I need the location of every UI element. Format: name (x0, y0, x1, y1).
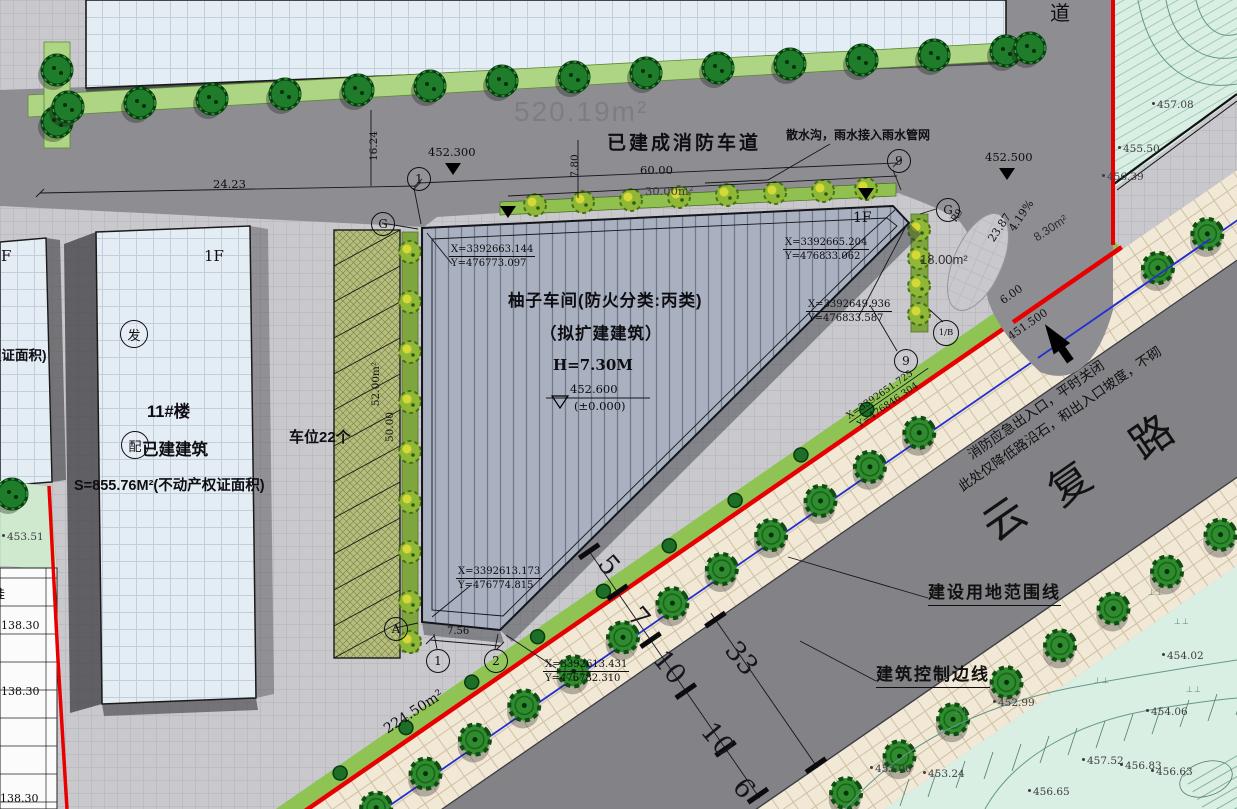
table-row-value: 138.30 (1, 686, 40, 698)
coord-y: Y=476833.587 (806, 312, 892, 324)
coord-x: X=3392613.431 (543, 659, 629, 672)
building-11-group (64, 226, 274, 716)
spot-elevation: 454.02 (1162, 650, 1204, 662)
coord-callout-1: X=3392663.144 Y=476773.097 (449, 244, 535, 269)
grid-bubble-1-top: 1 (407, 167, 431, 191)
spot-elevation: 453.00 (870, 763, 912, 775)
floor-label-main: 1F (853, 211, 872, 226)
floor-label-farleft: F (1, 249, 11, 265)
coord-y: Y=476774.815 (456, 579, 542, 591)
coord-callout-4: X=3392613.173 Y=476774.815 (456, 566, 542, 591)
site-plan-canvas[interactable]: 云 复 路 消防应急出入口，平时关闭 此处仅降低路沿石，和出入口坡度，不砌 6.… (0, 0, 1237, 809)
building-title: 柚子车间(防火分类:丙类) (508, 293, 702, 310)
grid-bubble-9-side: 9 (894, 349, 918, 373)
floor-label-left: 1F (204, 249, 224, 265)
spot-elevation: 456.39 (1102, 171, 1144, 183)
elevation-452500: 452.500 (985, 151, 1033, 163)
building-elevation: 452.600 (570, 383, 618, 395)
spot-elevation: 457.08 (1152, 99, 1194, 111)
grid-bubble-2: 2 (484, 649, 508, 673)
farleft-area-note-partial: (不动产权证面积) (0, 349, 47, 363)
area-label-520: 520.19m² (514, 97, 648, 126)
coord-callout-3: X=3392649.936 Y=476833.587 (806, 299, 892, 324)
hedge-left-area: 52.00m² (370, 360, 382, 408)
coord-y: Y=476782.310 (543, 672, 629, 684)
site-boundary-label: 建设用地范围线 (928, 578, 1061, 606)
building-name-11: 11#楼 (147, 404, 190, 421)
grass-symbol: ⊥⊥ (953, 707, 969, 716)
hedge-left-length: 50.00 (384, 403, 396, 451)
building-height: H=7.30M (553, 358, 633, 374)
coord-y: Y=476833.062 (783, 250, 869, 262)
grid-bubble-1b: 1/B (933, 320, 959, 346)
hedge-area-30: 30.00m² (645, 185, 693, 197)
spot-elevation: 453.51 (2, 531, 44, 543)
spot-elevation: 457.52 (1082, 755, 1124, 767)
road-up-name-char: 道 (1050, 4, 1070, 25)
table-row-value: 138.30 (0, 793, 39, 805)
grass-symbol: ⊥⊥ (1186, 685, 1202, 694)
parking-count-label: 车位22个 (289, 430, 351, 446)
building-elevation-zero: (±0.000) (574, 400, 626, 412)
fa-symbol-bubble: 发 (120, 320, 148, 348)
coord-x: X=3392663.144 (449, 244, 535, 257)
coord-callout-5: X=3392613.431 Y=476782.310 (543, 659, 629, 684)
elevation-452300: 452.300 (428, 146, 476, 158)
spot-elevation: 455.50 (1118, 143, 1160, 155)
grid-bubble-1-bottom: 1 (426, 649, 450, 673)
hedge-right-area: 18.00m² (920, 253, 968, 267)
spot-elevation: 454.06 (1146, 706, 1188, 718)
coord-y: Y=476773.097 (449, 257, 535, 269)
table-partial-char: 挂 (0, 588, 5, 601)
spot-elevation: 456.65 (1028, 786, 1070, 798)
grid-bubble-9-top: 9 (887, 149, 911, 173)
spot-elevation: 452.99 (993, 697, 1035, 709)
coord-x: X=3392613.173 (456, 566, 542, 579)
building-subtitle: （拟扩建建筑） (540, 326, 663, 343)
spot-elevation: 456.63 (1151, 766, 1193, 778)
grass-symbol: ⊥⊥ (1148, 588, 1164, 597)
coord-callout-2: X=3392665.204 Y=476833.062 (783, 237, 869, 262)
grass-symbol: ⊥⊥ (1174, 617, 1190, 626)
dim-16-vertical: 16.24 (368, 122, 380, 170)
coord-x: X=3392649.936 (806, 299, 892, 312)
dim-780-vertical: 7.80 (569, 142, 581, 190)
building-area-label: S=855.76M²(不动产权证面积) (74, 479, 265, 494)
drain-note: 散水沟，雨水接入雨水管网 (786, 129, 930, 142)
building-control-label: 建筑控制边线 (876, 660, 990, 688)
dim-24: 24.23 (213, 178, 246, 190)
grid-bubble-g-left: G (371, 212, 395, 236)
grid-bubble-a: A (384, 617, 408, 641)
fire-lane-label: 已建成消防车道 (607, 134, 761, 154)
dim-756: 7.56 (447, 627, 469, 638)
coord-x: X=3392665.204 (783, 237, 869, 250)
dim-60: 60.00 (640, 164, 673, 176)
grass-symbol: ⊥⊥ (1094, 676, 1110, 685)
building-status: 已建建筑 (142, 442, 208, 459)
table-row-value: 138.30 (1, 620, 40, 632)
spot-elevation: 453.24 (923, 768, 965, 780)
